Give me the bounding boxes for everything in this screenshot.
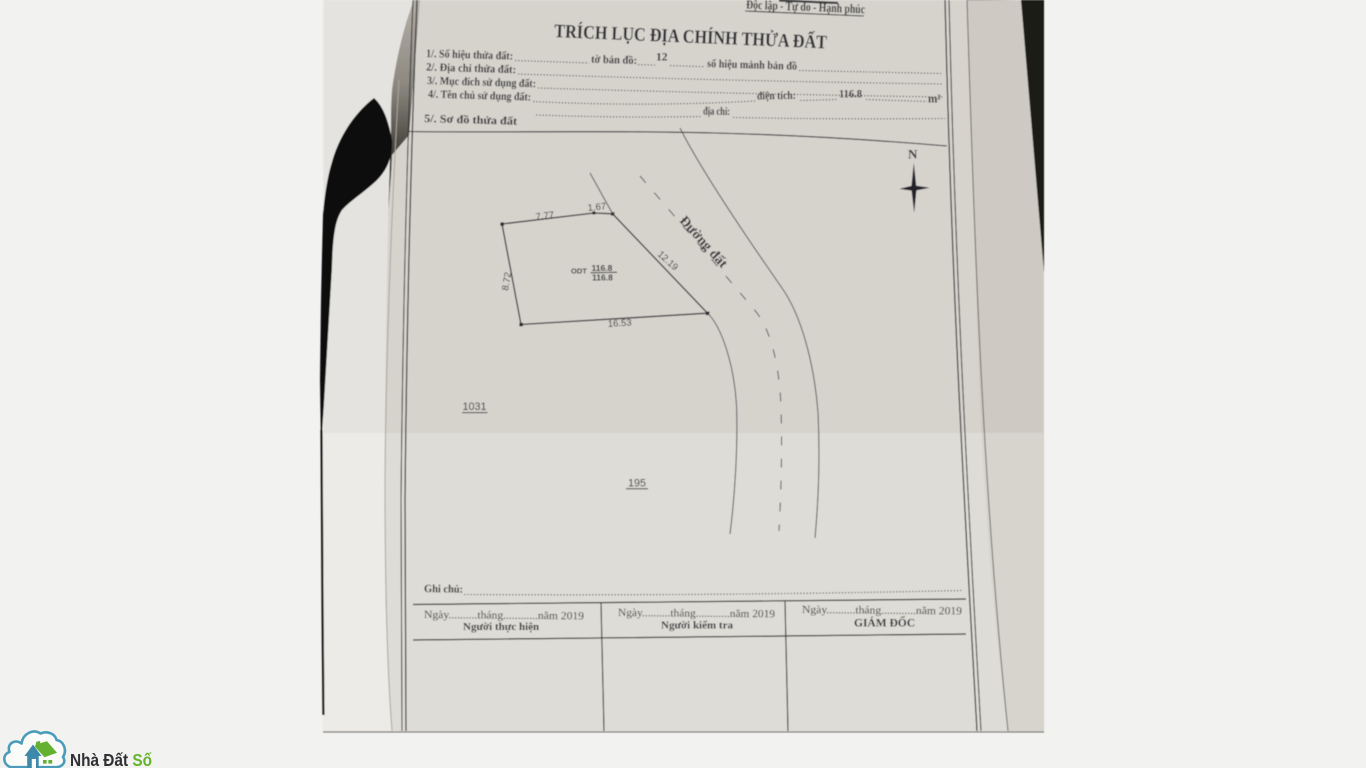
svg-text:địa chỉ:: địa chỉ: <box>703 106 730 118</box>
svg-text:Nhà Đất Số: Nhà Đất Số <box>70 750 152 768</box>
svg-text:Người thực hiện: Người thực hiện <box>463 621 539 633</box>
svg-text:116.8: 116.8 <box>592 273 613 283</box>
svg-text:ODT: ODT <box>571 267 587 276</box>
svg-text:116.8: 116.8 <box>592 263 613 273</box>
svg-text:m²: m² <box>928 94 941 106</box>
svg-text:Ghi chú:: Ghi chú: <box>424 583 463 596</box>
svg-text:12: 12 <box>656 52 668 64</box>
svg-text:GIÁM ĐỐC: GIÁM ĐỐC <box>854 615 915 630</box>
svg-text:195: 195 <box>628 478 646 490</box>
svg-text:Ngày..........tháng...........: Ngày..........tháng............năm 2019 <box>802 604 963 617</box>
svg-text:116.8: 116.8 <box>839 89 862 101</box>
svg-text:N: N <box>908 147 918 162</box>
svg-text:1031: 1031 <box>463 401 487 413</box>
svg-text:7.77: 7.77 <box>535 210 555 223</box>
svg-text:16.53: 16.53 <box>607 317 631 330</box>
svg-text:diện tích:: diện tích: <box>757 90 796 103</box>
svg-text:Người kiểm tra: Người kiểm tra <box>661 620 733 632</box>
svg-text:Ngày..........tháng...........: Ngày..........tháng............năm 2019 <box>618 607 776 620</box>
svg-text:1.67: 1.67 <box>587 201 607 214</box>
svg-text:tờ bản đồ:: tờ bản đồ: <box>591 54 637 67</box>
